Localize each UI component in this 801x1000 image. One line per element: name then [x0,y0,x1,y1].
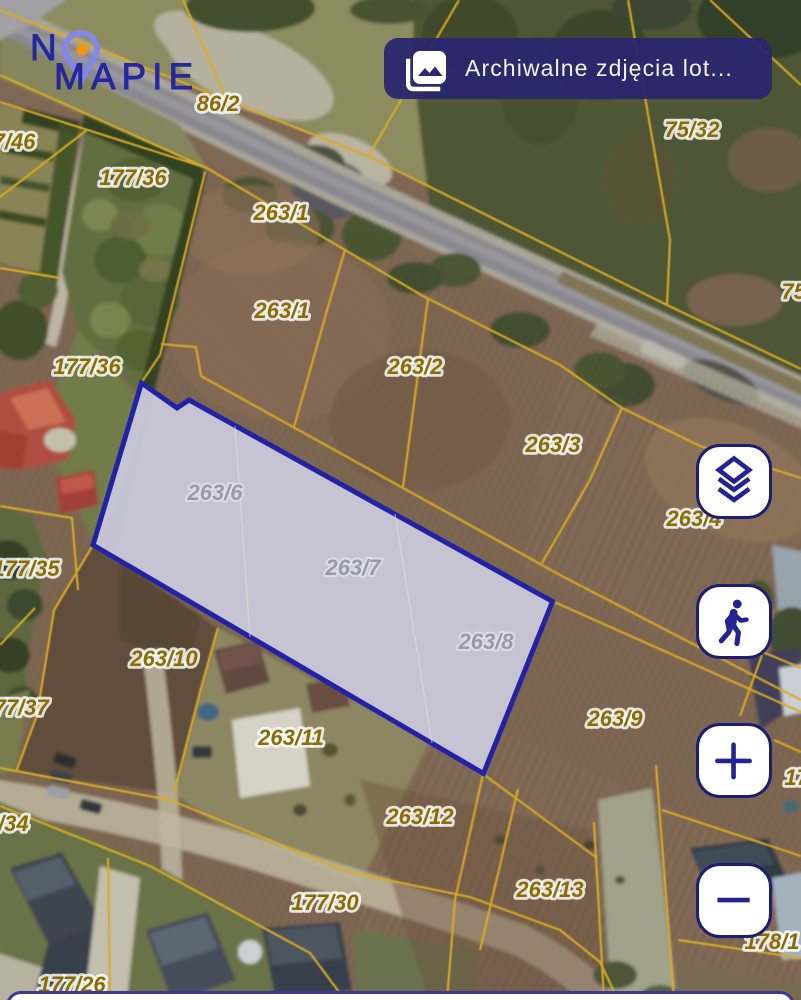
svg-text:263/10: 263/10 [129,646,198,671]
svg-text:7/46: 7/46 [0,129,36,154]
svg-text:263/1: 263/1 [253,298,309,323]
svg-text:263/8: 263/8 [457,629,514,654]
svg-text:263/13: 263/13 [515,877,583,902]
svg-text:263/2: 263/2 [386,354,443,379]
svg-text:263/9: 263/9 [586,706,643,731]
svg-text:177/35: 177/35 [0,556,60,581]
svg-text:177/37: 177/37 [0,695,50,720]
svg-text:263/3: 263/3 [524,432,580,457]
svg-text:263/12: 263/12 [385,804,454,829]
svg-text:75/32: 75/32 [664,117,720,142]
svg-text:177/34: 177/34 [0,811,29,836]
svg-text:MAPIE: MAPIE [54,56,199,97]
svg-text:263/11: 263/11 [257,725,324,750]
svg-text:178/2: 178/2 [784,765,801,790]
svg-text:263/6: 263/6 [186,480,243,505]
svg-text:263/7: 263/7 [324,555,382,580]
svg-text:177/36: 177/36 [99,165,167,190]
svg-text:86/2: 86/2 [197,91,241,116]
svg-text:N: N [30,27,57,68]
svg-text:177/30: 177/30 [291,890,359,915]
svg-text:75/31: 75/31 [781,279,801,304]
svg-text:263/1: 263/1 [252,200,308,225]
svg-text:177/36: 177/36 [53,354,121,379]
